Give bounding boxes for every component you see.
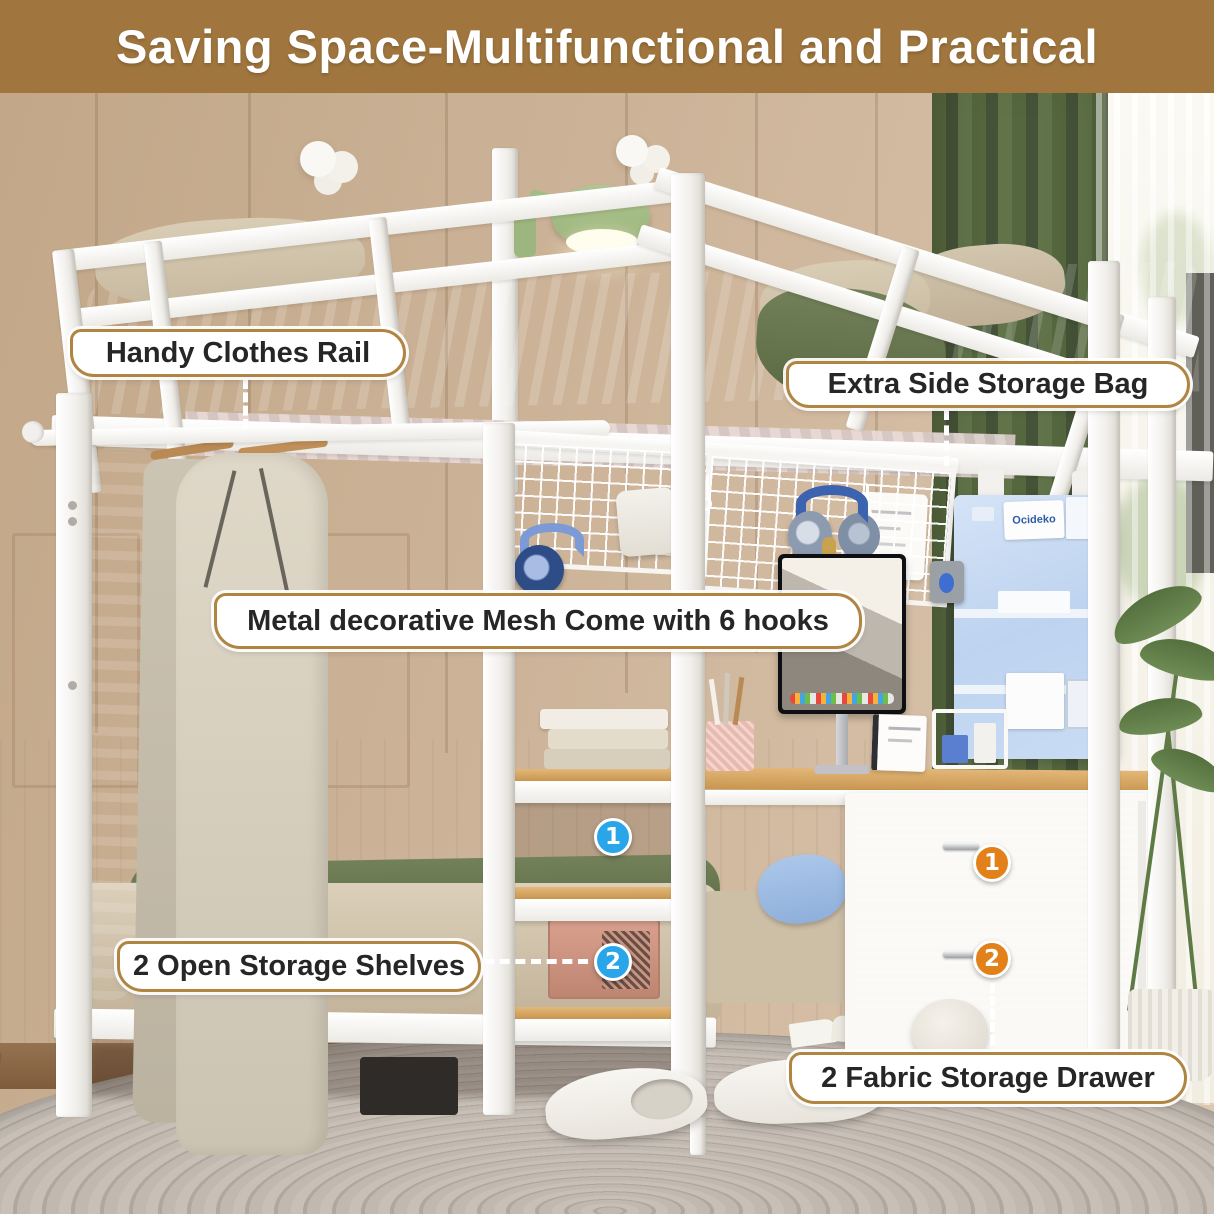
connector-clothes-rail (243, 379, 248, 429)
shelf-top-wood (505, 887, 687, 899)
screw (68, 681, 77, 690)
s-hook (706, 475, 709, 499)
pocket-papers (998, 591, 1070, 613)
shelf-top-wood (505, 769, 687, 781)
product-image: Saving Space-Multifunctional and Practic… (0, 0, 1214, 1214)
monitor-stand (836, 714, 848, 770)
pencil (723, 673, 730, 725)
calendar-line (888, 739, 912, 743)
cloud-decor (616, 135, 648, 167)
callout-fabric-drawers: 2 Fabric Storage Drawer (789, 1052, 1187, 1104)
wire-organizer (932, 709, 1008, 769)
headphones-earcup-blue (514, 545, 564, 595)
gadget-button (939, 573, 954, 593)
stacked-book (540, 709, 668, 729)
callout-storage-bag: Extra Side Storage Bag (786, 361, 1190, 408)
screw (68, 501, 77, 510)
room-photo: Ocideko (0, 93, 1214, 1214)
title-banner: Saving Space-Multifunctional and Practic… (0, 0, 1214, 93)
hanging-pouch (615, 487, 679, 558)
monitor-dock (790, 693, 894, 704)
callout-mesh-hooks-label: Metal decorative Mesh Come with 6 hooks (247, 605, 829, 638)
connector-open-shelves (484, 959, 588, 964)
callout-open-shelves-label: 2 Open Storage Shelves (133, 950, 465, 983)
badge-drawer-1-number: 1 (984, 850, 1000, 876)
badge-shelf-2-number: 2 (605, 949, 621, 975)
calendar-line (888, 727, 920, 731)
badge-drawer-2-number: 2 (984, 946, 1000, 972)
slipper-opening (629, 1076, 695, 1122)
shelf-board (505, 1019, 687, 1041)
banner-title: Saving Space-Multifunctional and Practic… (116, 19, 1098, 74)
desk-calendar (871, 714, 927, 772)
coat-piping (259, 468, 289, 592)
rail-endcap (22, 421, 44, 443)
callout-clothes-rail: Handy Clothes Rail (70, 329, 406, 377)
pencil (709, 679, 720, 725)
callout-mesh-hooks: Metal decorative Mesh Come with 6 hooks (214, 593, 862, 649)
callout-clothes-rail-label: Handy Clothes Rail (106, 337, 370, 370)
screw (68, 517, 77, 526)
brand-box-label: Ocideko (1012, 513, 1056, 527)
callout-fabric-drawers-label: 2 Fabric Storage Drawer (821, 1062, 1155, 1095)
shelf-board (505, 899, 687, 921)
organizer-book (974, 723, 996, 763)
callout-open-shelves: 2 Open Storage Shelves (117, 941, 481, 992)
connector-fabric-drawers (990, 983, 995, 1045)
pocket-book (1006, 673, 1064, 729)
badge-shelf-1-number: 1 (605, 824, 621, 850)
pencil (733, 677, 745, 725)
drawer-handle-1 (943, 843, 979, 850)
stacked-book (548, 729, 668, 749)
coat-piping (204, 470, 237, 587)
guardrail-upright (368, 217, 410, 433)
pen-cup (706, 721, 754, 771)
ladder-post-left (483, 423, 515, 1115)
hanging-gadget (930, 561, 964, 603)
callout-storage-bag-label: Extra Side Storage Bag (828, 368, 1149, 401)
stacked-book (544, 749, 670, 769)
monitor-base (814, 765, 870, 774)
badge-drawer-1: 1 (973, 844, 1011, 882)
under-bed-box (360, 1057, 458, 1115)
cloud-decor (300, 141, 336, 177)
organizer-box (942, 735, 968, 763)
badge-shelf-1: 1 (594, 818, 632, 856)
connector-storage-bag (944, 410, 949, 466)
brand-box: Ocideko (1003, 500, 1064, 540)
pocket-card-small (972, 507, 994, 521)
badge-shelf-2: 2 (594, 943, 632, 981)
shelf-board (505, 781, 687, 803)
hanging-coat-front (176, 453, 328, 1155)
shelf-top-wood (505, 1007, 687, 1019)
badge-drawer-2: 2 (973, 940, 1011, 978)
